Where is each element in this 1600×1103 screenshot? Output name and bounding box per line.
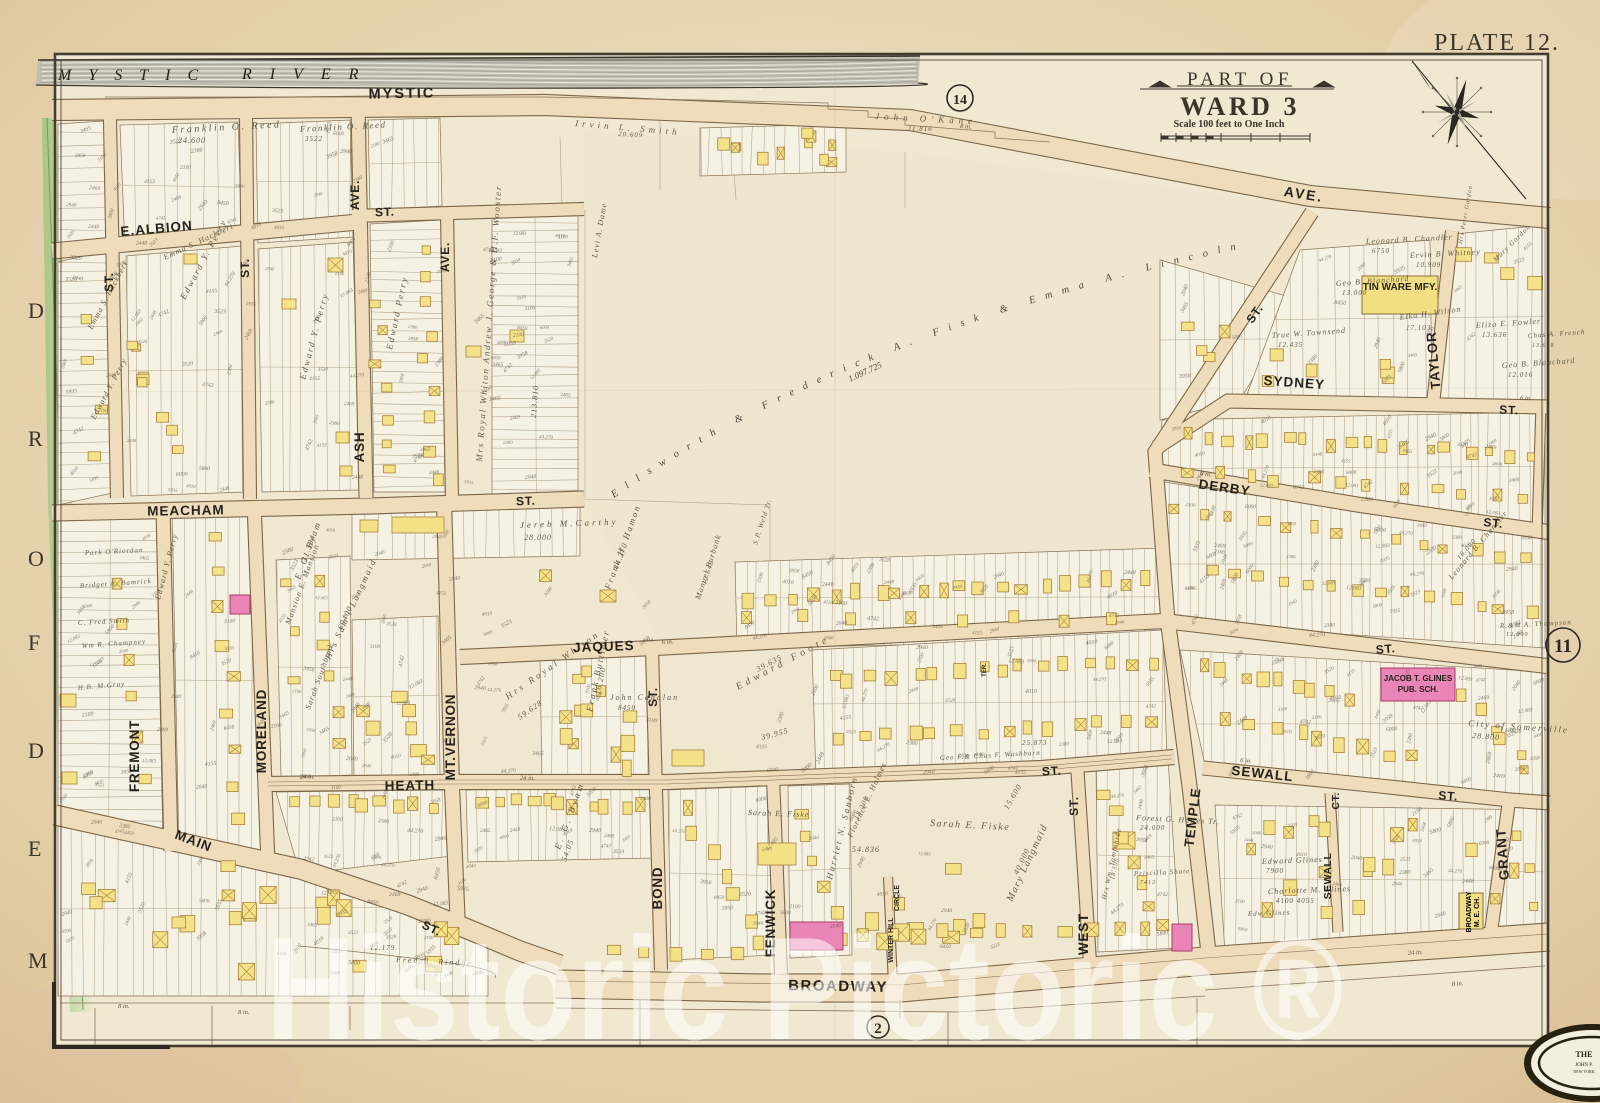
svg-text:5935: 5935 (168, 488, 178, 494)
svg-text:11.816: 11.816 (908, 125, 933, 133)
svg-text:ST.: ST. (1067, 796, 1081, 816)
svg-text:CT.: CT. (1330, 792, 1342, 809)
svg-text:24 in.: 24 in. (1408, 949, 1424, 957)
svg-text:Scale 100 feet to One Inch: Scale 100 feet to One Inch (1174, 119, 1285, 130)
svg-text:3520: 3520 (878, 557, 891, 564)
svg-text:ST.: ST. (516, 494, 536, 509)
svg-text:5800: 5800 (199, 466, 210, 472)
svg-text:4155: 4155 (972, 631, 983, 637)
svg-text:3100: 3100 (223, 618, 236, 625)
svg-text:2940: 2940 (265, 266, 275, 272)
svg-text:2940: 2940 (66, 202, 77, 209)
svg-text:AVE.: AVE. (438, 242, 452, 272)
svg-text:3523: 3523 (1400, 856, 1411, 863)
svg-text:2469: 2469 (1478, 695, 1490, 702)
svg-text:8450: 8450 (491, 356, 501, 362)
svg-text:3465: 3465 (531, 750, 544, 757)
svg-text:20.609: 20.609 (618, 130, 644, 139)
svg-text:2040: 2040 (448, 575, 460, 583)
svg-text:3523: 3523 (846, 730, 857, 736)
svg-text:2448: 2448 (352, 473, 364, 481)
svg-text:2940: 2940 (362, 763, 372, 769)
svg-text:2040: 2040 (1351, 854, 1363, 862)
svg-text:44.270: 44.270 (1093, 677, 1107, 683)
svg-text:2940: 2940 (171, 695, 182, 700)
svg-text:44.270: 44.270 (407, 828, 424, 835)
svg-text:3958: 3958 (488, 662, 498, 668)
svg-text:2380: 2380 (1399, 870, 1411, 876)
svg-text:2380: 2380 (1286, 555, 1296, 560)
svg-text:4155: 4155 (144, 179, 155, 185)
svg-text:PLATE 12.: PLATE 12. (1434, 30, 1560, 56)
svg-text:2380: 2380 (1324, 623, 1335, 629)
svg-text:4155: 4155 (756, 744, 767, 750)
svg-text:3100: 3100 (639, 796, 651, 802)
svg-text:2469: 2469 (389, 892, 401, 898)
svg-text:3958: 3958 (1501, 610, 1514, 616)
svg-text:13.000: 13.000 (1342, 289, 1367, 297)
svg-text:4742: 4742 (1157, 892, 1168, 898)
svg-text:2380: 2380 (1059, 742, 1070, 748)
svg-text:3958: 3958 (1520, 535, 1532, 541)
svg-text:6000: 6000 (1346, 470, 1357, 476)
svg-text:2380: 2380 (906, 740, 918, 747)
svg-text:6000: 6000 (1386, 726, 1398, 733)
svg-text:D: D (28, 738, 44, 763)
svg-text:MORELAND: MORELAND (254, 689, 269, 773)
svg-text:3958: 3958 (408, 337, 419, 343)
svg-text:PART OF: PART OF (1187, 69, 1293, 90)
svg-text:2380: 2380 (1452, 536, 1463, 541)
svg-text:3520: 3520 (738, 892, 751, 898)
svg-text:JOHN P.: JOHN P. (1575, 1063, 1593, 1068)
svg-text:44.270: 44.270 (1399, 531, 1413, 537)
svg-text:12.083: 12.083 (142, 758, 157, 765)
svg-text:3465: 3465 (560, 392, 571, 399)
svg-text:3523: 3523 (271, 208, 284, 215)
svg-text:24 in.: 24 in. (520, 775, 535, 782)
svg-text:2100: 2100 (335, 271, 345, 276)
svg-text:3523: 3523 (213, 309, 226, 315)
svg-text:THE: THE (1576, 1050, 1593, 1059)
svg-text:12.083: 12.083 (1260, 484, 1274, 489)
svg-text:7900: 7900 (1266, 867, 1284, 875)
svg-text:7413: 7413 (1140, 879, 1156, 886)
svg-text:2448: 2448 (1244, 837, 1254, 843)
svg-text:John Cahalan: John Cahalan (610, 693, 679, 702)
svg-text:3100: 3100 (1312, 715, 1323, 721)
svg-text:4010: 4010 (877, 891, 889, 898)
svg-text:2448: 2448 (1124, 569, 1136, 576)
svg-text:3520: 3520 (318, 367, 329, 373)
svg-text:3465: 3465 (1144, 853, 1155, 861)
svg-text:MEACHAM: MEACHAM (147, 502, 225, 518)
svg-text:4100 4055: 4100 4055 (1276, 897, 1315, 905)
svg-text:2469: 2469 (344, 401, 355, 408)
svg-text:2040: 2040 (836, 620, 848, 627)
svg-text:2380: 2380 (1361, 497, 1373, 503)
svg-text:3523: 3523 (95, 782, 105, 788)
svg-text:ST.: ST. (1042, 763, 1062, 778)
svg-text:3958: 3958 (1489, 497, 1499, 502)
svg-text:4010: 4010 (782, 578, 794, 586)
svg-text:ST.: ST. (1375, 641, 1396, 657)
svg-text:13.628: 13.628 (1532, 343, 1555, 349)
svg-text:6 in.: 6 in. (1520, 395, 1532, 402)
svg-text:12.083: 12.083 (513, 232, 527, 237)
svg-text:12.083: 12.083 (1107, 738, 1123, 745)
svg-text:ASH: ASH (352, 432, 367, 463)
svg-text:3522: 3522 (304, 135, 323, 143)
svg-text:2100: 2100 (1185, 502, 1196, 509)
svg-text:3465: 3465 (491, 362, 504, 368)
svg-text:2469: 2469 (157, 727, 168, 733)
svg-text:5935: 5935 (1287, 522, 1297, 527)
svg-text:ST.: ST. (1499, 403, 1519, 418)
svg-text:4155: 4155 (206, 288, 218, 295)
svg-text:6000: 6000 (767, 767, 779, 774)
svg-text:12.083: 12.083 (918, 851, 931, 856)
svg-text:4742: 4742 (1146, 704, 1157, 710)
svg-text:2040: 2040 (432, 535, 443, 541)
svg-text:6000: 6000 (540, 325, 550, 330)
svg-text:2940: 2940 (923, 769, 935, 776)
svg-text:2100: 2100 (513, 332, 525, 339)
svg-text:ST.: ST. (1438, 788, 1459, 803)
svg-text:ST.: ST. (646, 687, 660, 707)
svg-text:10.909: 10.909 (1416, 261, 1441, 269)
svg-text:M: M (28, 948, 48, 973)
svg-text:8450: 8450 (714, 894, 725, 901)
svg-text:3520: 3520 (64, 277, 77, 283)
svg-text:2380: 2380 (503, 441, 513, 446)
svg-text:4010: 4010 (481, 610, 493, 618)
svg-text:2940: 2940 (91, 819, 102, 826)
svg-text:2448: 2448 (127, 438, 137, 443)
svg-text:12.000: 12.000 (1506, 632, 1529, 638)
svg-text:44.270: 44.270 (1309, 632, 1326, 639)
svg-text:2448: 2448 (1100, 730, 1112, 737)
svg-text:PUB. SCH.: PUB. SCH. (1398, 685, 1438, 694)
svg-text:JACOB T. GLINES: JACOB T. GLINES (1384, 674, 1453, 683)
svg-text:RIVER: RIVER (241, 66, 376, 83)
svg-text:F: F (28, 630, 40, 655)
svg-text:2380: 2380 (408, 324, 418, 330)
svg-text:12.083: 12.083 (315, 595, 329, 600)
svg-text:5935: 5935 (1288, 823, 1298, 829)
svg-text:5935: 5935 (457, 886, 469, 893)
svg-text:3465: 3465 (480, 827, 491, 834)
svg-text:AVE.: AVE. (348, 180, 362, 210)
svg-text:2448: 2448 (1473, 663, 1483, 669)
svg-text:8450: 8450 (517, 325, 528, 332)
svg-text:3100: 3100 (1278, 707, 1288, 713)
svg-text:12.016: 12.016 (1508, 371, 1533, 379)
svg-text:12.083: 12.083 (1375, 543, 1391, 550)
svg-text:3520: 3520 (181, 361, 194, 368)
svg-text:2469: 2469 (1493, 773, 1505, 780)
svg-text:4742: 4742 (1293, 485, 1305, 491)
svg-text:HEATH: HEATH (385, 778, 436, 794)
svg-text:4010: 4010 (326, 527, 336, 533)
svg-text:2940: 2940 (1392, 881, 1403, 888)
svg-text:8450: 8450 (1334, 299, 1346, 307)
svg-text:6000: 6000 (1245, 504, 1256, 510)
svg-text:44.270: 44.270 (539, 435, 553, 441)
svg-text:12.083: 12.083 (396, 700, 411, 707)
svg-text:24.600: 24.600 (178, 136, 206, 145)
svg-text:28.000: 28.000 (524, 533, 552, 542)
svg-text:2100: 2100 (180, 165, 191, 171)
svg-text:2940: 2940 (340, 148, 352, 155)
svg-text:44.270: 44.270 (1448, 868, 1463, 875)
svg-text:2448: 2448 (88, 224, 100, 230)
svg-text:8450: 8450 (618, 704, 636, 712)
svg-text:2448: 2448 (1462, 879, 1474, 885)
svg-text:4742: 4742 (1109, 614, 1119, 619)
svg-text:8 in.: 8 in. (1452, 980, 1464, 988)
svg-text:4155: 4155 (309, 376, 320, 382)
svg-text:8450: 8450 (124, 831, 135, 837)
svg-text:M. E. CH.: M. E. CH. (1474, 897, 1481, 927)
svg-text:4155: 4155 (317, 443, 328, 449)
svg-text:E: E (28, 836, 41, 861)
svg-text:3958: 3958 (1178, 373, 1191, 380)
svg-text:BOND: BOND (650, 867, 665, 910)
svg-text:3465: 3465 (1408, 353, 1418, 359)
svg-text:2040: 2040 (525, 474, 537, 481)
svg-text:4742: 4742 (601, 843, 612, 850)
svg-text:4742: 4742 (1300, 719, 1311, 726)
svg-text:3465: 3465 (931, 624, 943, 630)
svg-text:5935: 5935 (1390, 608, 1401, 615)
svg-text:2940: 2940 (1115, 619, 1125, 625)
svg-text:6750: 6750 (1372, 247, 1390, 255)
svg-text:2940: 2940 (1506, 566, 1518, 573)
svg-text:JAQUES: JAQUES (573, 638, 635, 655)
svg-text:2448: 2448 (343, 677, 354, 683)
svg-text:2448: 2448 (509, 826, 521, 834)
svg-text:4742: 4742 (867, 615, 879, 623)
svg-text:TER.: TER. (982, 663, 988, 677)
svg-text:24.000: 24.000 (1140, 824, 1165, 832)
svg-text:3520: 3520 (138, 339, 148, 344)
svg-text:5935: 5935 (246, 302, 257, 308)
svg-text:11: 11 (1554, 636, 1572, 657)
svg-text:3958: 3958 (1412, 839, 1422, 844)
svg-text:8450: 8450 (217, 199, 229, 207)
svg-text:6 in.: 6 in. (662, 638, 674, 646)
svg-text:4155: 4155 (1015, 770, 1027, 776)
svg-text:ST.: ST. (1483, 515, 1504, 531)
svg-text:4742: 4742 (202, 382, 214, 389)
svg-text:ST.: ST. (238, 258, 252, 278)
svg-text:8 in.: 8 in. (118, 1003, 130, 1010)
svg-text:D: D (28, 298, 44, 323)
svg-text:MT.VERNON: MT.VERNON (443, 694, 458, 781)
svg-text:4155: 4155 (204, 760, 216, 768)
svg-text:44.270: 44.270 (381, 863, 395, 869)
svg-text:2448: 2448 (884, 579, 895, 586)
svg-text:5800: 5800 (300, 774, 311, 780)
svg-text:8450: 8450 (367, 898, 379, 906)
svg-text:2040: 2040 (1252, 830, 1262, 836)
svg-text:3100: 3100 (370, 645, 381, 650)
svg-text:2448: 2448 (1313, 451, 1323, 457)
svg-text:5800: 5800 (497, 340, 507, 345)
svg-text:2448: 2448 (136, 239, 148, 247)
svg-text:2469: 2469 (604, 834, 615, 840)
svg-text:FREMONT: FREMONT (127, 720, 142, 792)
svg-text:WARD 3: WARD 3 (1180, 92, 1300, 121)
svg-text:5935: 5935 (225, 645, 235, 651)
svg-text:2040: 2040 (346, 755, 358, 763)
svg-text:25.873: 25.873 (1022, 739, 1047, 747)
svg-text:MYSTIC: MYSTIC (57, 67, 215, 84)
svg-text:ST.: ST. (102, 272, 116, 292)
svg-text:44.270: 44.270 (1410, 570, 1425, 578)
svg-text:SEWALL: SEWALL (1322, 853, 1334, 900)
svg-text:14: 14 (953, 93, 967, 108)
svg-text:2040: 2040 (1417, 524, 1428, 529)
svg-text:12.435: 12.435 (1278, 341, 1303, 349)
svg-text:5800: 5800 (235, 184, 245, 190)
svg-text:4742: 4742 (115, 828, 125, 834)
svg-text:3100: 3100 (331, 786, 341, 791)
svg-text:3958: 3958 (411, 453, 424, 460)
svg-text:6000: 6000 (176, 472, 188, 478)
svg-text:6000: 6000 (1479, 840, 1490, 847)
svg-text:2448: 2448 (429, 469, 440, 476)
svg-text:ST.: ST. (375, 205, 395, 220)
svg-text:Historic Pictoric ®: Historic Pictoric ® (266, 906, 1344, 1070)
svg-text:NEW YORK: NEW YORK (1573, 1069, 1594, 1074)
svg-text:2940: 2940 (589, 827, 601, 834)
svg-text:17.103: 17.103 (1406, 324, 1431, 332)
svg-text:3465: 3465 (420, 446, 431, 453)
svg-text:44.270: 44.270 (501, 768, 517, 775)
svg-text:4010: 4010 (274, 226, 284, 231)
svg-text:R: R (28, 426, 43, 451)
svg-text:2940: 2940 (1261, 843, 1273, 851)
svg-text:5800: 5800 (199, 898, 210, 904)
svg-text:5935: 5935 (1283, 729, 1293, 734)
svg-text:5800: 5800 (1492, 462, 1503, 468)
svg-text:O: O (28, 546, 44, 571)
svg-text:2940: 2940 (1027, 658, 1037, 663)
svg-text:3520: 3520 (69, 255, 82, 262)
svg-text:2469: 2469 (1509, 477, 1521, 484)
svg-text:3520: 3520 (945, 698, 956, 704)
svg-text:54.836: 54.836 (852, 845, 880, 854)
svg-text:3958: 3958 (1530, 756, 1541, 762)
svg-text:2100: 2100 (332, 817, 343, 823)
svg-text:13.636: 13.636 (1482, 331, 1507, 339)
svg-text:44.270: 44.270 (487, 687, 502, 694)
svg-text:3523: 3523 (324, 855, 334, 860)
svg-text:12.083: 12.083 (1322, 581, 1336, 587)
svg-text:3100: 3100 (525, 305, 536, 312)
svg-text:4155: 4155 (1341, 459, 1351, 465)
svg-text:2469: 2469 (89, 184, 101, 192)
svg-text:3958: 3958 (789, 568, 800, 574)
svg-text:3958: 3958 (75, 153, 86, 159)
svg-text:2448: 2448 (822, 581, 834, 588)
svg-text:3523: 3523 (612, 849, 624, 855)
svg-text:BROADWAY: BROADWAY (1466, 891, 1473, 932)
svg-text:4010: 4010 (555, 234, 566, 239)
svg-text:8 in.: 8 in. (238, 1009, 250, 1016)
svg-text:2940: 2940 (916, 645, 928, 651)
svg-text:2469: 2469 (1214, 543, 1226, 550)
svg-text:3465: 3465 (1327, 698, 1340, 704)
svg-text:2380: 2380 (1313, 469, 1325, 476)
svg-text:2040: 2040 (466, 864, 477, 870)
svg-text:2040: 2040 (196, 784, 208, 791)
svg-text:44.270: 44.270 (672, 829, 686, 835)
svg-text:4010: 4010 (1025, 689, 1037, 695)
